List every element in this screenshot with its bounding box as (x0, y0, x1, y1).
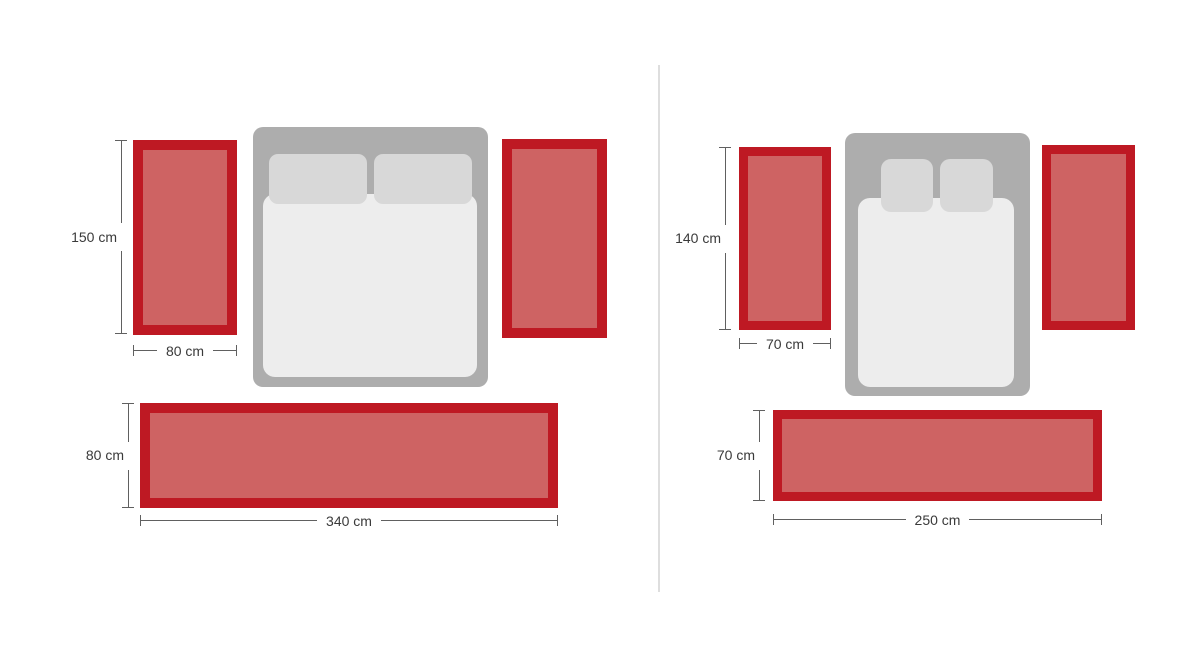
dimension-segment (759, 411, 760, 442)
runner-height-label: 80 cm (86, 448, 127, 462)
side-rug-width-label: 80 cm (157, 344, 213, 358)
side-rug-width-label: 70 cm (757, 337, 813, 351)
side-rug-height-label: 150 cm (71, 230, 120, 244)
panel-divider (658, 65, 660, 592)
dimension-cap (122, 507, 134, 508)
dimension-cap (115, 333, 127, 334)
duvet (263, 194, 477, 377)
dimension-cap (830, 338, 831, 349)
dimension-segment (725, 148, 726, 225)
runner-rug (773, 410, 1102, 501)
bed (253, 127, 488, 387)
dimension-segment (134, 350, 157, 351)
bed (845, 133, 1030, 396)
dimension-cap (236, 345, 237, 356)
pillow-left (881, 159, 933, 212)
dimension-line-side-rug-width: 70 cm (739, 338, 831, 349)
dimension-cap (753, 500, 765, 501)
side-rug-right (502, 139, 607, 338)
dimension-segment (969, 519, 1101, 520)
dimension-segment (128, 404, 129, 442)
dimension-segment (774, 519, 906, 520)
runner-height-label: 70 cm (717, 448, 758, 462)
dimension-cap (1101, 514, 1102, 525)
dimension-segment (128, 470, 129, 508)
runner-width-label: 250 cm (906, 513, 970, 527)
side-rug-right-pile (1051, 154, 1126, 321)
dimension-segment (213, 350, 236, 351)
side-rug-left (739, 147, 831, 330)
side-rug-right (1042, 145, 1135, 330)
pillow-right (940, 159, 993, 212)
dimension-segment (813, 343, 830, 344)
dimension-segment (381, 520, 557, 521)
bed-rug-size-diagram: 150 cm 80 cm 80 cm 340 cm (0, 0, 1200, 658)
side-rug-left (133, 140, 237, 335)
dimension-segment (759, 470, 760, 501)
dimension-line-side-rug-width: 80 cm (133, 345, 237, 356)
dimension-cap (719, 329, 731, 330)
runner-width-label: 340 cm (317, 514, 381, 528)
duvet (858, 198, 1014, 387)
dimension-segment (725, 253, 726, 330)
dimension-cap (557, 515, 558, 526)
side-rug-height-label: 140 cm (675, 231, 724, 245)
runner-rug (140, 403, 558, 508)
dimension-line-runner-width: 340 cm (140, 515, 558, 526)
side-rug-left-pile (143, 150, 227, 325)
runner-rug-pile (150, 413, 548, 498)
dimension-segment (141, 520, 317, 521)
pillow-right (374, 154, 472, 204)
side-rug-left-pile (748, 156, 822, 321)
pillow-left (269, 154, 367, 204)
dimension-segment (740, 343, 757, 344)
dimension-segment (121, 141, 122, 223)
dimension-line-runner-width: 250 cm (773, 514, 1102, 525)
dimension-segment (121, 251, 122, 333)
side-rug-right-pile (512, 149, 597, 328)
runner-rug-pile (782, 419, 1093, 492)
